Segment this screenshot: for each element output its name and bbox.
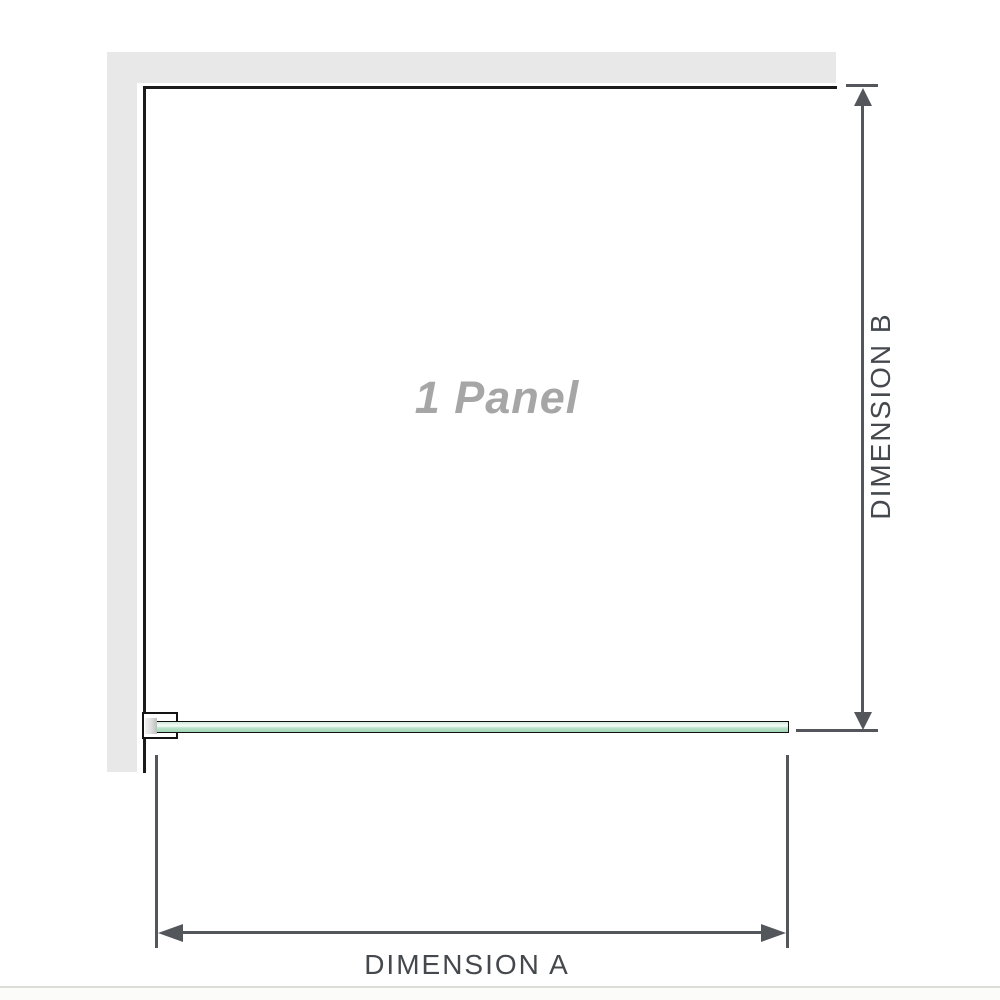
dimension-a-label: DIMENSION A — [364, 949, 570, 981]
dimension-b-cap-top — [846, 84, 878, 87]
dimension-a-extension-left — [155, 755, 158, 948]
wall-side — [107, 52, 137, 772]
arrow-down-icon — [854, 712, 872, 730]
dimension-a-extension-right — [786, 755, 789, 948]
dimension-diagram: 1 Panel DIMENSION B DIMENSION A — [0, 0, 1000, 1000]
wall-top — [107, 52, 836, 83]
glass-panel — [157, 721, 789, 733]
arrow-left-icon — [158, 924, 183, 942]
arrow-right-icon — [761, 924, 786, 942]
dimension-a-line — [170, 931, 774, 934]
panel-border-left — [143, 86, 146, 773]
dimension-b-label: DIMENSION B — [865, 312, 897, 519]
arrow-up-icon — [854, 88, 872, 106]
panel-label: 1 Panel — [415, 372, 580, 424]
dimension-b-line — [861, 96, 864, 720]
panel-border-top — [143, 86, 837, 89]
wall-bracket-pad — [145, 718, 157, 734]
footer-area — [0, 988, 1000, 1000]
